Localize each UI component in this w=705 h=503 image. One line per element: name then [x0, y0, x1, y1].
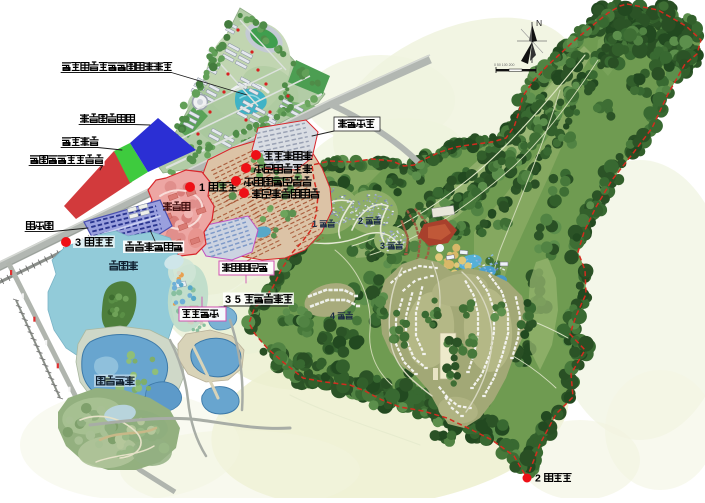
svg-text:4: 4 [330, 311, 335, 321]
svg-text:3: 3 [75, 237, 81, 249]
svg-text:2: 2 [358, 216, 363, 226]
svg-text:3: 3 [380, 241, 385, 251]
svg-text:0 50 100 200: 0 50 100 200 [494, 63, 514, 67]
svg-text:3: 3 [225, 294, 231, 306]
svg-text:N: N [536, 18, 542, 28]
svg-text:5: 5 [235, 294, 241, 306]
svg-text:2: 2 [535, 473, 541, 485]
svg-text:1: 1 [199, 182, 205, 194]
svg-text:1: 1 [312, 219, 317, 229]
